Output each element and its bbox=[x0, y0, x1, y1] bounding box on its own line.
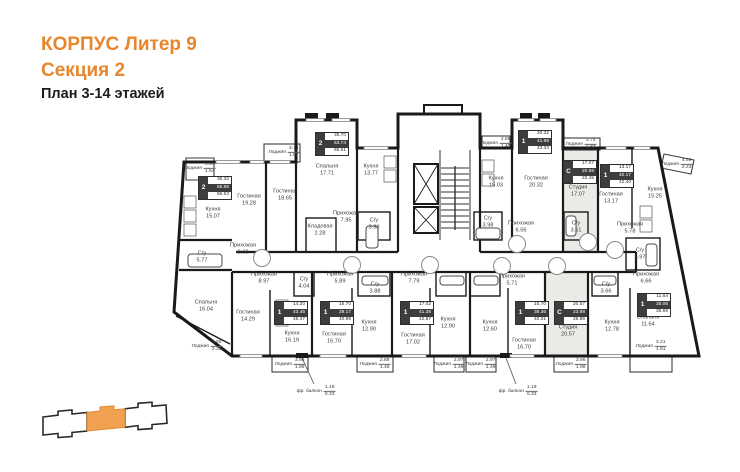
loggia-dims: 2.881.45 bbox=[500, 137, 512, 149]
room-label: Прихожая7.79 bbox=[401, 271, 427, 284]
apartment-stamp: 116.7039.1740.98 bbox=[320, 301, 354, 325]
loggia-name: Лоджия bbox=[566, 142, 583, 147]
stamp-living-area: 16.70 bbox=[330, 302, 353, 309]
stamp-living-area: 17.02 bbox=[410, 302, 433, 309]
room-area: 3.98 bbox=[369, 224, 380, 231]
stamp-total-with-loggia: 42.87 bbox=[410, 317, 433, 324]
loggia-dims: 4.652.33 bbox=[211, 340, 223, 352]
room-area: 16.04 bbox=[195, 306, 217, 313]
loggia-dims: 3.961.98 bbox=[575, 358, 587, 370]
room-label: С/у4.04 bbox=[299, 276, 310, 289]
room-name: Прихожая bbox=[633, 271, 659, 278]
room-label: Кухня12.90 bbox=[362, 319, 377, 332]
loggia-name: Лоджия bbox=[275, 362, 292, 367]
apartment-stamp: С20.5723.8825.86 bbox=[554, 301, 588, 325]
room-name: Спальня bbox=[195, 299, 217, 306]
room-name: Гостиная bbox=[273, 188, 296, 195]
room-label: Гостиная18.65 bbox=[273, 188, 296, 201]
room-area: 8.60 bbox=[230, 249, 256, 256]
room-name: Гостиная bbox=[237, 193, 260, 200]
floor-plan-drawing bbox=[0, 0, 740, 472]
loggia-name: Лоджия bbox=[185, 166, 202, 171]
room-name: Прихожая bbox=[401, 271, 427, 278]
room-area: 6.56 bbox=[508, 227, 534, 234]
room-area: 12.90 bbox=[362, 326, 377, 333]
room-name: Кухня bbox=[285, 330, 300, 337]
room-label: Спальня16.04 bbox=[195, 299, 217, 312]
loggia-label: Лоджия3.961.98 bbox=[275, 358, 306, 370]
room-area: 17.71 bbox=[316, 170, 338, 177]
room-label: С/у3.51 bbox=[571, 220, 582, 233]
stamp-total-with-loggia: 65.61 bbox=[325, 148, 348, 155]
stamp-total-area: 41.89 bbox=[528, 138, 551, 145]
room-label: Кухня13.77 bbox=[364, 163, 379, 176]
room-area: 12.60 bbox=[483, 326, 498, 333]
room-label: Прихожая5.89 bbox=[327, 271, 353, 284]
room-label: Прихожая7.95 bbox=[333, 210, 359, 223]
room-label: Гостиная20.32 bbox=[524, 175, 547, 188]
room-area: 16.19 bbox=[285, 337, 300, 344]
stamp-total-with-loggia: 40.98 bbox=[330, 317, 353, 324]
stamp-total-area: 38.36 bbox=[525, 309, 548, 316]
room-label: Кухня15.25 bbox=[648, 186, 663, 199]
stamp-room-count: 1 bbox=[275, 302, 284, 324]
room-label: Гостиная17.02 bbox=[401, 332, 424, 345]
room-name: Прихожая bbox=[499, 273, 525, 280]
stamp-total-area: 41.38 bbox=[410, 309, 433, 316]
stamp-room-count: 1 bbox=[638, 294, 647, 316]
room-name: С/у bbox=[299, 276, 310, 283]
room-label: Прихожая5.71 bbox=[499, 273, 525, 286]
room-label: Студия17.07 bbox=[569, 184, 588, 197]
stamp-room-count: С bbox=[564, 161, 573, 183]
floor-plan: Кухня15.07 Гостиная19.28 Гостиная18.65 С… bbox=[0, 0, 740, 472]
room-area: 3.98 bbox=[483, 222, 494, 229]
minimap-section-2-highlighted bbox=[87, 406, 125, 431]
loggia-label: Лоджия3.741.87 bbox=[566, 138, 597, 150]
stamp-room-count: 1 bbox=[519, 131, 528, 153]
room-label: Кухня15.07 bbox=[206, 206, 221, 219]
note-dims: 1.190.33 bbox=[526, 385, 538, 397]
loggia-dims: 3.211.61 bbox=[655, 340, 667, 352]
apartment-stamp: 116.7038.3640.31 bbox=[515, 301, 549, 325]
room-label: С/у3.98 bbox=[369, 217, 380, 230]
room-area: 13.77 bbox=[364, 170, 379, 177]
room-area: 17.07 bbox=[569, 191, 588, 198]
room-area: 12.90 bbox=[441, 323, 456, 330]
stamp-total-with-loggia: 42.40 bbox=[610, 180, 633, 187]
french-balcony-note: фр. балкон1.190.33 bbox=[297, 385, 336, 397]
note-label: фр. балкон bbox=[499, 389, 524, 394]
loggia-name: Лоджия bbox=[662, 162, 679, 167]
room-area: 5.97 bbox=[635, 254, 646, 261]
room-area: 3.66 bbox=[601, 288, 612, 295]
room-area: 8.97 bbox=[251, 278, 277, 285]
apartment-stamp: С17.0720.5622.45 bbox=[563, 160, 597, 184]
room-label: С/у5.97 bbox=[635, 247, 646, 260]
note-dims: 1.190.33 bbox=[324, 385, 336, 397]
room-label: Кухня15.03 bbox=[489, 175, 504, 188]
stamp-total-area: 43.45 bbox=[284, 309, 307, 316]
loggia-dims: 3.741.87 bbox=[585, 138, 597, 150]
stamp-living-area: 17.07 bbox=[573, 161, 596, 168]
loggia-name: Лоджия bbox=[360, 362, 377, 367]
note-label: фр. балкон bbox=[297, 389, 322, 394]
loggia-label: Лоджия2.891.45 bbox=[360, 358, 391, 370]
room-name: С/у bbox=[601, 281, 612, 288]
loggia-name: Лоджия bbox=[434, 362, 451, 367]
stamp-total-area: 35.06 bbox=[647, 301, 670, 308]
room-area: 7.79 bbox=[401, 278, 427, 285]
room-label: Прихожая8.60 bbox=[230, 242, 256, 255]
loggia-label: Лоджия2.881.45 bbox=[481, 137, 512, 149]
room-area: 6.66 bbox=[633, 278, 659, 285]
stamp-room-count: С bbox=[555, 302, 564, 324]
apartment-stamp: 235.3265.6866.53 bbox=[198, 176, 232, 200]
room-name: Студия bbox=[569, 184, 588, 191]
room-name: Кухня bbox=[364, 163, 379, 170]
room-name: Гостиная bbox=[401, 332, 424, 339]
stamp-total-with-loggia: 22.45 bbox=[573, 176, 596, 183]
room-name: Гостиная bbox=[236, 309, 259, 316]
room-name: Кладовая bbox=[307, 223, 332, 230]
room-area: 5.78 bbox=[617, 228, 643, 235]
loggia-label: Лоджия3.741.87 bbox=[269, 146, 300, 158]
stamp-total-area: 63.74 bbox=[325, 140, 348, 147]
minimap-section-3 bbox=[125, 402, 167, 429]
room-name: С/у bbox=[635, 247, 646, 254]
french-balcony-note: фр. балкон1.190.33 bbox=[499, 385, 538, 397]
loggia-dims: 3.971.54 bbox=[204, 162, 216, 174]
room-name: С/у bbox=[369, 217, 380, 224]
room-area: 17.02 bbox=[401, 339, 424, 346]
loggia-name: Лоджия bbox=[556, 362, 573, 367]
stamp-room-count: 1 bbox=[401, 302, 410, 324]
room-name: Кухня bbox=[206, 206, 221, 213]
loggia-dims: 3.961.98 bbox=[294, 358, 306, 370]
room-label: Прихожая6.66 bbox=[633, 271, 659, 284]
room-area: 3.51 bbox=[571, 227, 582, 234]
room-name: Прихожая bbox=[230, 242, 256, 249]
loggia-label: Лоджия4.652.33 bbox=[192, 340, 223, 352]
minimap bbox=[43, 402, 167, 437]
room-label: Кухня12.60 bbox=[483, 319, 498, 332]
room-area: 5.89 bbox=[327, 278, 353, 285]
minimap-section-1 bbox=[43, 410, 87, 438]
stamp-living-area: 20.32 bbox=[528, 131, 551, 138]
room-name: Кухня bbox=[483, 319, 498, 326]
room-area: 16.70 bbox=[512, 344, 535, 351]
apartment-stamp: 120.3241.8943.34 bbox=[518, 130, 552, 154]
stamp-total-area: 65.68 bbox=[208, 184, 231, 191]
room-name: Студия bbox=[559, 324, 578, 331]
room-name: Спальня bbox=[316, 163, 338, 170]
room-label: Кухня12.78 bbox=[605, 319, 620, 332]
stamp-total-with-loggia: 66.53 bbox=[208, 192, 231, 199]
loggia-dims: 2.971.49 bbox=[453, 358, 465, 370]
loggia-name: Лоджия bbox=[636, 344, 653, 349]
room-label: Прихожая5.78 bbox=[617, 221, 643, 234]
room-label: Гостиная13.17 bbox=[599, 191, 622, 204]
room-name: Гостиная bbox=[599, 191, 622, 198]
stamp-room-count: 1 bbox=[321, 302, 330, 324]
room-area: 4.04 bbox=[299, 283, 310, 290]
room-label: С/у3.88 bbox=[370, 281, 381, 294]
room-label: Студия20.57 bbox=[559, 324, 578, 337]
loggia-name: Лоджия bbox=[269, 150, 286, 155]
loggia-dims: 3.741.87 bbox=[288, 146, 300, 158]
loggia-name: Лоджия bbox=[481, 141, 498, 146]
room-label: Кладовая2.28 bbox=[307, 223, 332, 236]
stamp-total-area: 20.56 bbox=[573, 168, 596, 175]
room-name: Прихожая bbox=[508, 220, 534, 227]
room-name: Кухня bbox=[605, 319, 620, 326]
room-name: Прихожая bbox=[333, 210, 359, 217]
loggia-name: Лоджия bbox=[192, 344, 209, 349]
room-label: С/у3.98 bbox=[483, 215, 494, 228]
room-label: Прихожая8.97 bbox=[251, 271, 277, 284]
stamp-room-count: 2 bbox=[199, 177, 208, 199]
room-label: Прихожая6.56 bbox=[508, 220, 534, 233]
stamp-room-count: 1 bbox=[601, 165, 610, 187]
apartment-stamp: 235.7063.7465.61 bbox=[315, 132, 349, 156]
room-area: 13.17 bbox=[599, 198, 622, 205]
loggia-label: Лоджия2.971.49 bbox=[434, 358, 465, 370]
room-name: Прихожая bbox=[251, 271, 277, 278]
room-area: 7.95 bbox=[333, 217, 359, 224]
stamp-total-with-loggia: 40.31 bbox=[525, 317, 548, 324]
loggia-dims: 2.891.45 bbox=[379, 358, 391, 370]
loggia-label: Лоджия3.211.61 bbox=[636, 340, 667, 352]
apartment-stamp: 111.6435.0636.69 bbox=[637, 293, 671, 317]
room-name: С/у bbox=[483, 215, 494, 222]
loggia-label: Лоджия3.961.98 bbox=[556, 358, 587, 370]
stamp-living-area: 14.20 bbox=[284, 302, 307, 309]
stamp-room-count: 2 bbox=[316, 133, 325, 155]
room-label: Гостиная14.29 bbox=[236, 309, 259, 322]
loggia-dims: 2.971.49 bbox=[485, 358, 497, 370]
apartment-stamp: 114.2043.4545.47 bbox=[274, 301, 308, 325]
stamp-total-with-loggia: 25.86 bbox=[564, 317, 587, 324]
room-label: Гостиная16.70 bbox=[322, 331, 345, 344]
stamp-total-with-loggia: 43.34 bbox=[528, 146, 551, 153]
stamp-living-area: 16.70 bbox=[525, 302, 548, 309]
room-name: Кухня bbox=[362, 319, 377, 326]
loggia-label: Лоджия4.452.23 bbox=[662, 158, 693, 170]
stamp-living-area: 13.17 bbox=[610, 165, 633, 172]
stamp-total-with-loggia: 36.69 bbox=[647, 309, 670, 316]
apartment-stamp: 113.1740.1742.40 bbox=[600, 164, 634, 188]
stamp-living-area: 35.70 bbox=[325, 133, 348, 140]
room-area: 11.64 bbox=[637, 321, 659, 328]
stamp-total-area: 40.17 bbox=[610, 172, 633, 179]
room-area: 2.28 bbox=[307, 230, 332, 237]
room-area: 16.70 bbox=[322, 338, 345, 345]
room-area: 12.78 bbox=[605, 326, 620, 333]
room-area: 19.28 bbox=[237, 200, 260, 207]
apartment-stamp: 117.0241.3842.87 bbox=[400, 301, 434, 325]
room-name: С/у bbox=[571, 220, 582, 227]
room-label: Спальня17.71 bbox=[316, 163, 338, 176]
room-area: 20.32 bbox=[524, 182, 547, 189]
loggia-label: Лоджия2.971.49 bbox=[466, 358, 497, 370]
loggia-name: Лоджия bbox=[466, 362, 483, 367]
loggia-label: Лоджия3.971.54 bbox=[185, 162, 216, 174]
room-name: Прихожая bbox=[617, 221, 643, 228]
room-area: 3.88 bbox=[370, 288, 381, 295]
room-name: С/у bbox=[197, 250, 208, 257]
room-name: Кухня bbox=[441, 316, 456, 323]
room-label: Гостиная19.28 bbox=[237, 193, 260, 206]
room-label: Кухня16.19 bbox=[285, 330, 300, 343]
stamp-total-area: 23.88 bbox=[564, 309, 587, 316]
room-area: 5.77 bbox=[197, 257, 208, 264]
stamp-living-area: 35.32 bbox=[208, 177, 231, 184]
stamp-living-area: 20.57 bbox=[564, 302, 587, 309]
room-area: 18.65 bbox=[273, 195, 296, 202]
stamp-room-count: 1 bbox=[516, 302, 525, 324]
room-name: Гостиная bbox=[524, 175, 547, 182]
room-label: С/у5.77 bbox=[197, 250, 208, 263]
room-label: Кухня12.90 bbox=[441, 316, 456, 329]
room-area: 15.03 bbox=[489, 182, 504, 189]
room-area: 5.71 bbox=[499, 280, 525, 287]
room-name: Кухня bbox=[489, 175, 504, 182]
room-area: 14.29 bbox=[236, 316, 259, 323]
room-area: 20.57 bbox=[559, 331, 578, 338]
room-label: С/у3.66 bbox=[601, 281, 612, 294]
stamp-total-with-loggia: 45.47 bbox=[284, 317, 307, 324]
room-name: Гостиная bbox=[322, 331, 345, 338]
room-name: Прихожая bbox=[327, 271, 353, 278]
room-name: Кухня bbox=[648, 186, 663, 193]
room-area: 15.25 bbox=[648, 193, 663, 200]
room-area: 15.07 bbox=[206, 213, 221, 220]
room-label: Гостиная16.70 bbox=[512, 337, 535, 350]
stamp-living-area: 11.64 bbox=[647, 294, 670, 301]
stairs bbox=[440, 150, 470, 240]
stamp-total-area: 39.17 bbox=[330, 309, 353, 316]
room-name: С/у bbox=[370, 281, 381, 288]
loggia-dims: 4.452.23 bbox=[681, 158, 693, 170]
room-name: Гостиная bbox=[512, 337, 535, 344]
